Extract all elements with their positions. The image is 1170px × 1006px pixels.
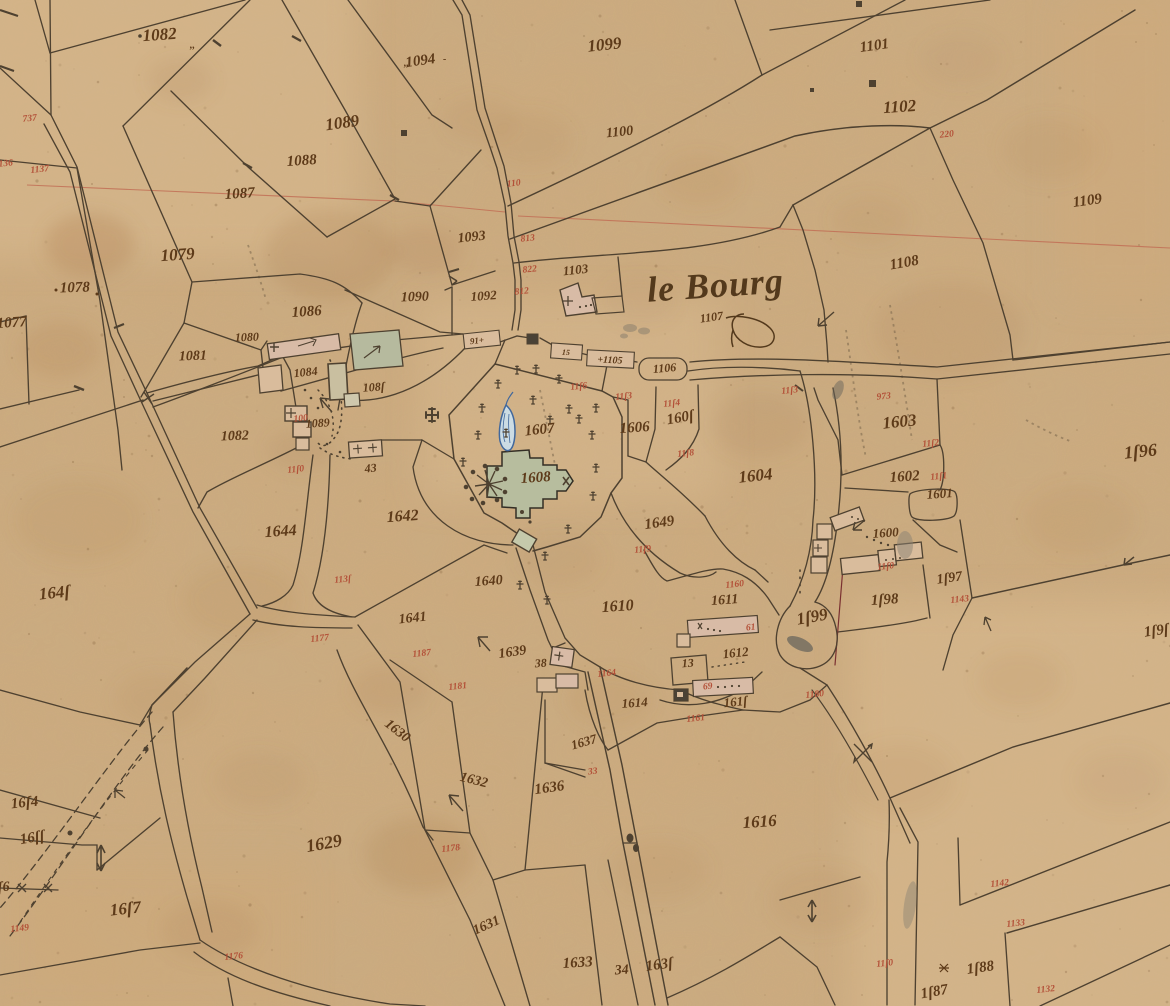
svg-text:1087: 1087 [224, 185, 256, 203]
svg-text:1604: 1604 [738, 464, 774, 486]
svg-text:164ſ: 164ſ [38, 581, 73, 603]
svg-text:1607: 1607 [524, 420, 556, 439]
svg-text:1640: 1640 [474, 573, 503, 590]
svg-text:15: 15 [562, 348, 571, 358]
svg-text:1084: 1084 [293, 364, 318, 380]
svg-text:11ſ0: 11ſ0 [876, 958, 894, 970]
svg-text:1606: 1606 [619, 419, 651, 437]
svg-text:1ſ98: 1ſ98 [870, 591, 899, 609]
svg-text:1178: 1178 [441, 843, 461, 855]
svg-text:1610: 1610 [601, 597, 634, 616]
svg-text:1106: 1106 [652, 360, 676, 376]
svg-text:1176: 1176 [224, 951, 244, 963]
svg-text:110: 110 [506, 178, 521, 189]
svg-text:1616: 1616 [742, 811, 778, 832]
svg-text:16ſ4: 16ſ4 [10, 794, 40, 813]
svg-text:1149: 1149 [10, 923, 30, 935]
svg-text:1608: 1608 [520, 469, 552, 487]
svg-text:16ſ7: 16ſ7 [109, 897, 143, 919]
svg-text:737: 737 [22, 113, 38, 125]
svg-text:-: - [443, 54, 446, 65]
svg-text:34: 34 [613, 963, 629, 979]
svg-text:38: 38 [533, 656, 547, 671]
svg-text:812: 812 [514, 286, 529, 297]
svg-text:1161: 1161 [686, 713, 705, 725]
svg-text:1164: 1164 [597, 668, 617, 680]
svg-text:1092: 1092 [470, 287, 497, 304]
svg-text:1644: 1644 [264, 522, 297, 541]
svg-text:13: 13 [681, 656, 694, 671]
svg-text:11ſ8: 11ſ8 [677, 448, 695, 460]
svg-text:1089: 1089 [305, 415, 330, 431]
svg-text:1641: 1641 [398, 610, 427, 628]
svg-text:1100: 1100 [605, 124, 634, 142]
svg-text:+1105: +1105 [597, 354, 623, 366]
svg-text:1642: 1642 [386, 507, 419, 526]
svg-text:1088: 1088 [286, 152, 318, 170]
svg-text:973: 973 [876, 391, 891, 402]
svg-text:11ſ0: 11ſ0 [877, 561, 895, 573]
svg-text:1090: 1090 [401, 290, 430, 306]
svg-text:1102: 1102 [882, 96, 917, 117]
svg-text:1603: 1603 [882, 410, 918, 433]
svg-text:1600: 1600 [872, 524, 899, 541]
svg-text:91+: 91+ [469, 335, 484, 346]
svg-text:1181: 1181 [448, 681, 467, 693]
svg-text:11ſ3: 11ſ3 [615, 391, 633, 403]
svg-text:822: 822 [522, 264, 537, 275]
svg-text:ſ6: ſ6 [0, 880, 10, 896]
svg-text:1611: 1611 [711, 592, 739, 609]
svg-text:1082: 1082 [142, 24, 178, 45]
svg-text:136: 136 [0, 158, 14, 169]
svg-text:1078: 1078 [60, 279, 91, 296]
svg-text:1602: 1602 [889, 468, 921, 486]
svg-text:11ſ6: 11ſ6 [570, 381, 588, 393]
svg-text:1133: 1133 [1006, 918, 1026, 930]
svg-text:1614: 1614 [621, 694, 648, 711]
svg-text:1612: 1612 [722, 644, 750, 662]
svg-text:,,: ,, [189, 40, 195, 51]
svg-text:113ſ: 113ſ [334, 574, 353, 586]
svg-text:69: 69 [703, 682, 714, 693]
svg-text:161ſ: 161ſ [723, 693, 750, 711]
svg-text:11ſ2: 11ſ2 [922, 438, 940, 450]
svg-text:11ſ0: 11ſ0 [287, 464, 305, 476]
svg-text:33: 33 [587, 767, 599, 778]
svg-text:1142: 1142 [990, 878, 1010, 890]
svg-text:1082: 1082 [221, 429, 250, 445]
svg-text:1180: 1180 [805, 689, 825, 701]
svg-text:1ſ96: 1ſ96 [1123, 439, 1158, 462]
svg-text:1ſ9ſ: 1ſ9ſ [1143, 621, 1170, 641]
svg-text:1143: 1143 [950, 594, 970, 606]
svg-text:1080: 1080 [235, 330, 259, 345]
svg-text:11ſ4: 11ſ4 [663, 398, 681, 410]
svg-text:11ſ3: 11ſ3 [781, 385, 799, 397]
svg-text:1081: 1081 [179, 349, 208, 365]
svg-text:1086: 1086 [291, 303, 323, 321]
svg-text:1103: 1103 [562, 261, 589, 279]
svg-text:1601: 1601 [926, 485, 953, 502]
svg-text:11ſ9: 11ſ9 [634, 544, 652, 556]
svg-text:11ſ1: 11ſ1 [930, 471, 948, 483]
svg-text:1187: 1187 [412, 648, 433, 660]
svg-text:1160: 1160 [725, 579, 745, 591]
svg-text:220: 220 [938, 129, 954, 141]
svg-text:1137: 1137 [30, 164, 51, 176]
svg-text:1093: 1093 [457, 229, 486, 247]
svg-text:43: 43 [363, 460, 377, 475]
svg-text:813: 813 [520, 233, 535, 244]
svg-text:1079: 1079 [160, 244, 196, 265]
svg-text:1132: 1132 [1036, 984, 1056, 996]
svg-text:100: 100 [293, 413, 308, 424]
svg-text:108ſ: 108ſ [362, 379, 386, 395]
svg-text:1633: 1633 [562, 954, 594, 972]
svg-text:1077: 1077 [0, 314, 28, 332]
svg-text:1177: 1177 [310, 633, 331, 645]
svg-text:1099: 1099 [587, 33, 623, 56]
svg-text:61: 61 [746, 623, 756, 634]
